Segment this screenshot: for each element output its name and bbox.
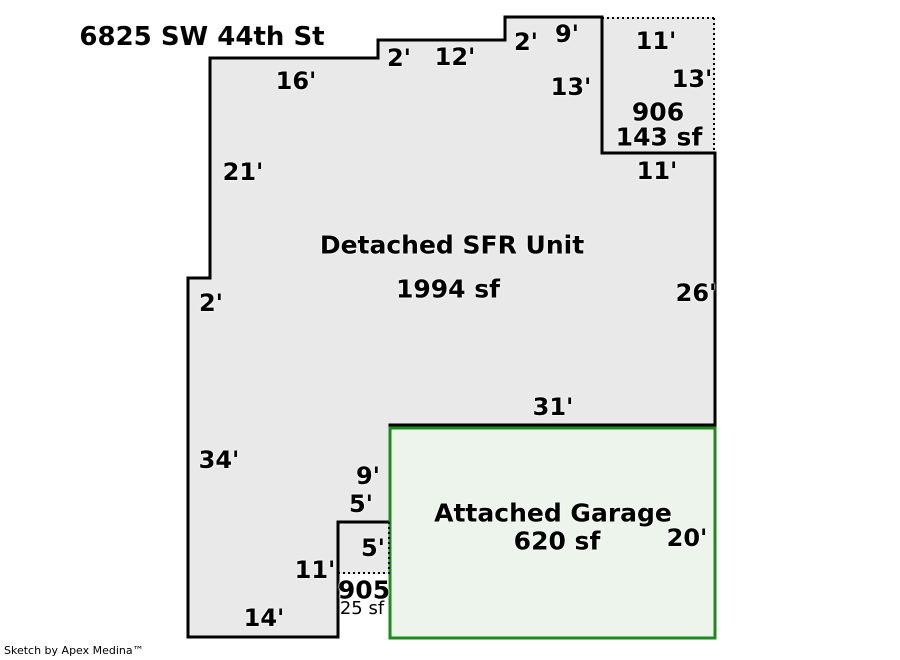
dim-2ft-top-step-2: 2' xyxy=(514,30,538,54)
dim-34ft-west-lower: 34' xyxy=(199,448,240,472)
dim-31ft-garage-top: 31' xyxy=(533,395,574,419)
porch-906-area-label: 143 sf xyxy=(616,125,703,150)
dim-5ft-jog-horizontal: 5' xyxy=(349,492,373,516)
dim-13ft-porch-east: 13' xyxy=(672,67,713,91)
dim-11ft-porch-bottom: 11' xyxy=(637,159,678,183)
dim-16ft-top-west: 16' xyxy=(276,69,317,93)
floorplan-sketch: 6825 SW 44th St 16' 2' 12' 2' 9' 11' 13'… xyxy=(0,0,900,660)
patio-905-area-label: 25 sf xyxy=(340,600,384,618)
dim-20ft-garage-east: 20' xyxy=(667,526,708,550)
dim-11ft-southwest-wall: 11' xyxy=(295,558,336,582)
dim-5ft-patio-side: 5' xyxy=(361,536,385,560)
dim-9ft-top-east: 9' xyxy=(555,22,579,46)
dim-26ft-east-wall: 26' xyxy=(676,281,717,305)
dim-2ft-west-notch: 2' xyxy=(199,291,223,315)
garage-area-label: 620 sf xyxy=(514,529,601,554)
dim-11ft-porch-top: 11' xyxy=(636,29,677,53)
garage-name-label: Attached Garage xyxy=(434,501,672,526)
floorplan-drawing xyxy=(0,0,900,660)
unit-name-label: Detached SFR Unit xyxy=(320,233,584,258)
dim-13ft-porch-west: 13' xyxy=(551,75,592,99)
dim-21ft-west-upper: 21' xyxy=(223,160,264,184)
dim-2ft-top-step-1: 2' xyxy=(387,46,411,70)
dim-12ft-top-middle: 12' xyxy=(435,45,476,69)
sketch-credit: Sketch by Apex Medina™ xyxy=(4,644,144,657)
address-title: 6825 SW 44th St xyxy=(79,24,324,50)
dim-9ft-jog-vertical: 9' xyxy=(356,464,380,488)
porch-906-number-label: 906 xyxy=(632,100,684,125)
dim-14ft-bottom-wall: 14' xyxy=(244,606,285,630)
unit-area-label: 1994 sf xyxy=(396,277,500,302)
